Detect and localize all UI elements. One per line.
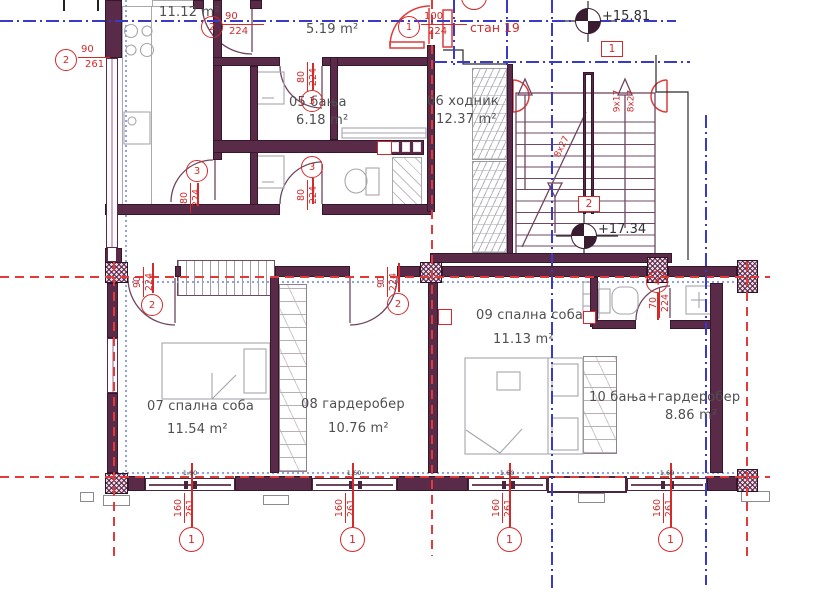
door-mark-circle: 2 [55,49,77,71]
wall-segment [235,476,312,491]
vent-cell [391,142,399,152]
wall-segment [592,320,636,329]
wall-segment [270,277,279,473]
wall-segment [322,57,432,66]
vent-box [583,311,596,324]
blue-axis-line [551,0,553,592]
dim-denominator: 224 [660,288,671,318]
window-glass-line [316,484,393,486]
room-name-label: 07 спална соба [147,399,254,414]
wall-segment [583,72,594,75]
dim-numerator: 90 [132,267,144,297]
wall-segment [250,0,262,9]
dimension-fraction: 100224 [421,11,467,37]
dimension-fraction: 160261 [173,493,207,523]
axis-circle: 1 [497,527,522,552]
room-name-label: 09 спална соба [476,308,583,323]
wall-segment [710,283,723,473]
dim-denominator: 261 [664,493,675,523]
wall-segment [128,476,145,491]
balcony-doorway [547,476,627,493]
room-area-label: 12.37 m² [436,112,497,127]
window-glass-line [472,484,543,486]
stair-note: 9x17 [612,90,622,113]
dim-denominator: 224 [421,25,467,38]
window-glass-line [631,484,703,486]
window-mullion [511,481,515,489]
red-axis-line [113,262,115,562]
dimension-fraction: 90261 [78,44,110,70]
window-mullion [193,481,197,489]
window-dim-label: 1.60 [336,469,372,477]
washbasin-icon [256,156,284,188]
plan-linework [0,0,820,600]
wall-segment [213,57,280,66]
door-mark-circle: 2 [201,16,223,38]
room-area-label: 11.13 m² [493,332,554,347]
stair-note: 8x27 [626,90,636,113]
level-marker-icon [571,223,597,249]
dim-numerator: 90 [222,11,264,25]
wall-segment [250,66,258,206]
dim-denominator: 224 [191,183,202,213]
dim-numerator: 80 [179,183,191,213]
dimension-fraction: 90224 [376,267,410,297]
wall-segment [583,72,586,214]
dim-denominator: 261 [503,493,514,523]
blue-axis-line [434,61,690,63]
window-mullion [184,481,188,489]
dimension-tick [97,0,99,11]
axis-circle: 1 [658,527,683,552]
dimension-fraction: 160261 [491,493,525,523]
dim-numerator: 100 [421,11,467,25]
dim-denominator: 224 [388,267,399,297]
dim-numerator: 80 [296,62,308,92]
dimension-fraction: 80224 [296,62,330,92]
door-mark-circle: 2 [141,294,163,316]
building-edge [656,55,688,260]
door-mark-circle: 3 [186,160,208,182]
room-area-label: 6.18 m² [296,113,348,128]
room-area-label: 5.19 m² [306,22,358,37]
landing-door-icon [513,80,667,112]
window-mullion [502,481,506,489]
door-mark-circle: 3 [301,156,323,178]
dimension-fraction: 90224 [132,267,166,297]
wall-segment [507,64,513,256]
washbasin-icon [686,286,712,314]
level-text: +17.34 [598,222,646,237]
axis-circle: 1 [340,527,365,552]
vent-cell [413,142,421,152]
dim-numerator: 160 [491,493,503,523]
dim-numerator: 70 [648,288,660,318]
room-name-label: 08 гардеробер [301,397,405,412]
window [145,478,235,491]
shelf-icon [342,128,426,138]
dim-denominator: 224 [144,267,155,297]
room-name-label: 06 ходник [427,94,499,109]
window-dim-label: 1.60 [489,469,525,477]
red-axis-line [431,0,433,556]
room-name-label: 10 бања+гардеробер [589,390,740,405]
bed-double [465,358,583,454]
dim-denominator: 261 [78,58,110,71]
axis-circle: 1 [179,527,204,552]
stair-flight-tag: 2 [578,196,600,212]
dim-numerator: 160 [652,493,664,523]
level-marker-icon [575,8,601,34]
bed-single [162,343,270,399]
room-area-label: 8.86 m² [665,408,717,423]
wall-segment [707,476,737,491]
pier [105,262,128,283]
dim-denominator: 261 [185,493,196,523]
window-mullion [661,481,665,489]
toilet-icon [345,168,379,195]
room-area-label: 10.76 m² [328,421,389,436]
dim-numerator: 160 [173,493,185,523]
window-glass-line [149,484,231,486]
vent-icon [381,144,593,320]
dimension-fraction: 160261 [334,493,368,523]
apartment-tag: стан 19 [470,20,520,35]
window-dim-label: 1.60 [172,469,208,477]
dim-numerator: 80 [296,180,308,210]
wall-segment [213,140,388,153]
toilet-icon [598,287,638,314]
kitchen-sink-icon [124,112,150,144]
window [627,478,707,491]
door-mark-circle: 3 [301,90,323,112]
dim-denominator: 224 [222,25,264,38]
window [312,478,397,491]
dim-denominator: 261 [346,493,357,523]
vent-cell [402,142,410,152]
wall-segment [428,277,438,473]
red-axis-line [746,262,748,562]
dimension-fraction: 80224 [179,183,213,213]
window-mullion [358,481,362,489]
dimension-fraction: 80224 [296,180,330,210]
blue-axis-line [705,115,707,585]
floor-plan-canvas: 11.12 m²5.19 m²05 бања6.18 m²06 ходник12… [0,0,820,600]
dim-denominator: 224 [308,180,319,210]
stove-icon [125,25,154,57]
window-dim-label: 1.60 [649,469,685,477]
dimension-fraction: 70224 [648,288,682,318]
dim-denominator: 224 [308,62,319,92]
dim-numerator: 90 [78,44,110,58]
dim-numerator: 160 [334,493,346,523]
dim-numerator: 90 [376,267,388,297]
wall-segment [322,204,432,215]
dimension-fraction: 90224 [222,11,264,37]
wall-segment [591,72,594,214]
window [468,478,547,491]
washbasin-icon [256,72,284,104]
dimension-fraction: 160261 [652,493,686,523]
door-mark-circle: 1 [398,16,420,38]
glazing [106,58,118,248]
vent-box [438,309,452,325]
stair-flight-tag: 1 [601,41,623,57]
dimension-tick [63,0,65,11]
level-text: +15.81 [602,9,650,24]
vent-box [377,141,392,155]
room-area-label: 11.54 m² [167,422,228,437]
